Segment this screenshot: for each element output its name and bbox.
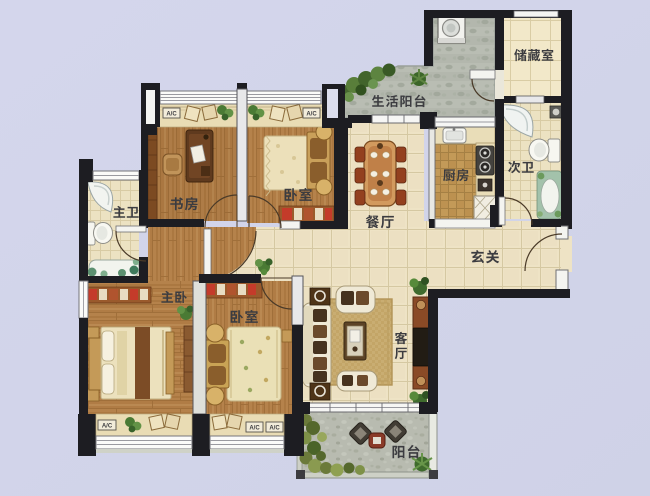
svg-text:A/C: A/C: [269, 426, 280, 432]
svg-text:A/C: A/C: [306, 112, 317, 118]
svg-text:A/C: A/C: [102, 424, 113, 430]
svg-text:A/C: A/C: [249, 426, 260, 432]
svg-text:A/C: A/C: [166, 112, 177, 118]
